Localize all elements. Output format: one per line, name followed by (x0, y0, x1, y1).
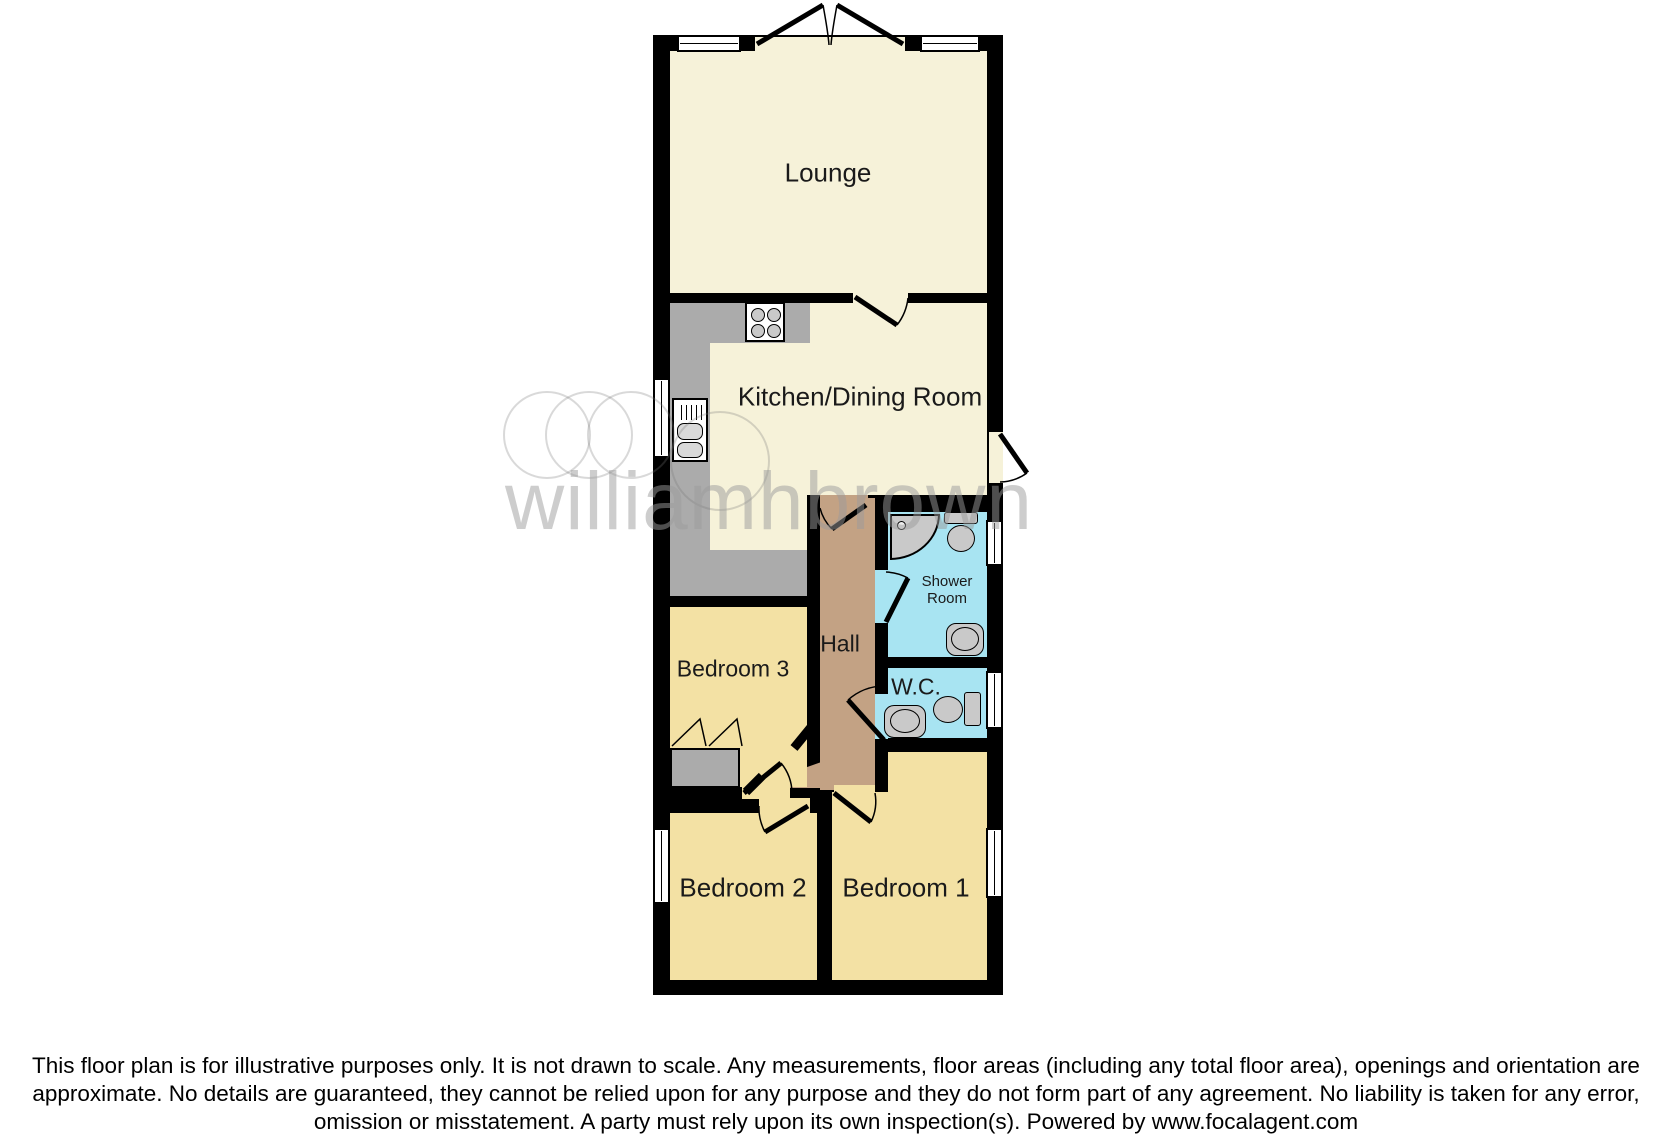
label-bedroom3: Bedroom 3 (677, 656, 790, 683)
door-arc (871, 793, 876, 822)
label-bedroom1: Bedroom 1 (842, 873, 969, 904)
watermark-text: williamhbrown (505, 455, 1033, 549)
door-leaf (848, 700, 884, 740)
french-door-leaf (837, 5, 903, 44)
door-arc (781, 763, 792, 793)
wardrobe-door-lines (672, 719, 742, 746)
wall-stub (746, 776, 762, 792)
door-arc (831, 5, 837, 45)
disclaimer-text: This floor plan is for illustrative purp… (0, 1052, 1672, 1136)
door-leaf (886, 578, 908, 622)
label-lounge: Lounge (785, 158, 872, 189)
door-arc (897, 298, 908, 325)
wall-stub (794, 726, 812, 748)
door-arc (886, 572, 908, 578)
label-bedroom2: Bedroom 2 (679, 873, 806, 904)
label-shower-room: Shower Room (909, 573, 985, 607)
floorplan-page: williamhbrown Lounge Kitchen/Dining Room… (0, 0, 1672, 1144)
door-arc (848, 686, 884, 700)
label-hall: Hall (820, 631, 860, 658)
door-arc (759, 806, 765, 832)
door-leaf (855, 297, 897, 325)
french-door-leaf (757, 5, 823, 44)
door-leaf (834, 793, 871, 822)
label-wc: W.C. (891, 674, 941, 701)
label-kitchen: Kitchen/Dining Room (738, 382, 982, 413)
door-leaf (765, 806, 808, 832)
door-arc (823, 5, 829, 45)
